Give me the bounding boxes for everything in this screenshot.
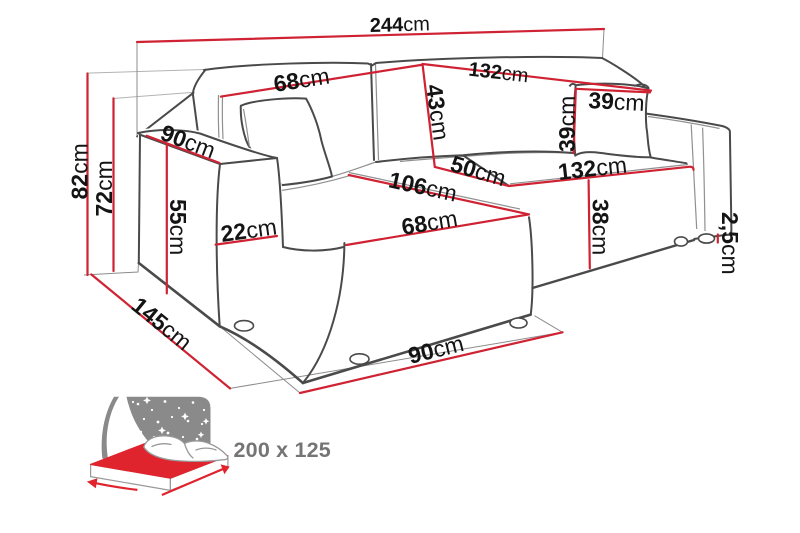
svg-text:2,5cm: 2,5cm (717, 212, 743, 275)
svg-text:39cm: 39cm (588, 87, 646, 116)
svg-text:82cm: 82cm (67, 143, 93, 199)
svg-text:200 x 125: 200 x 125 (234, 438, 331, 462)
svg-text:55cm: 55cm (165, 199, 191, 255)
svg-text:244cm: 244cm (370, 13, 431, 37)
svg-text:38cm: 38cm (588, 199, 614, 255)
svg-text:39cm: 39cm (554, 96, 580, 152)
svg-text:72cm: 72cm (91, 160, 117, 216)
